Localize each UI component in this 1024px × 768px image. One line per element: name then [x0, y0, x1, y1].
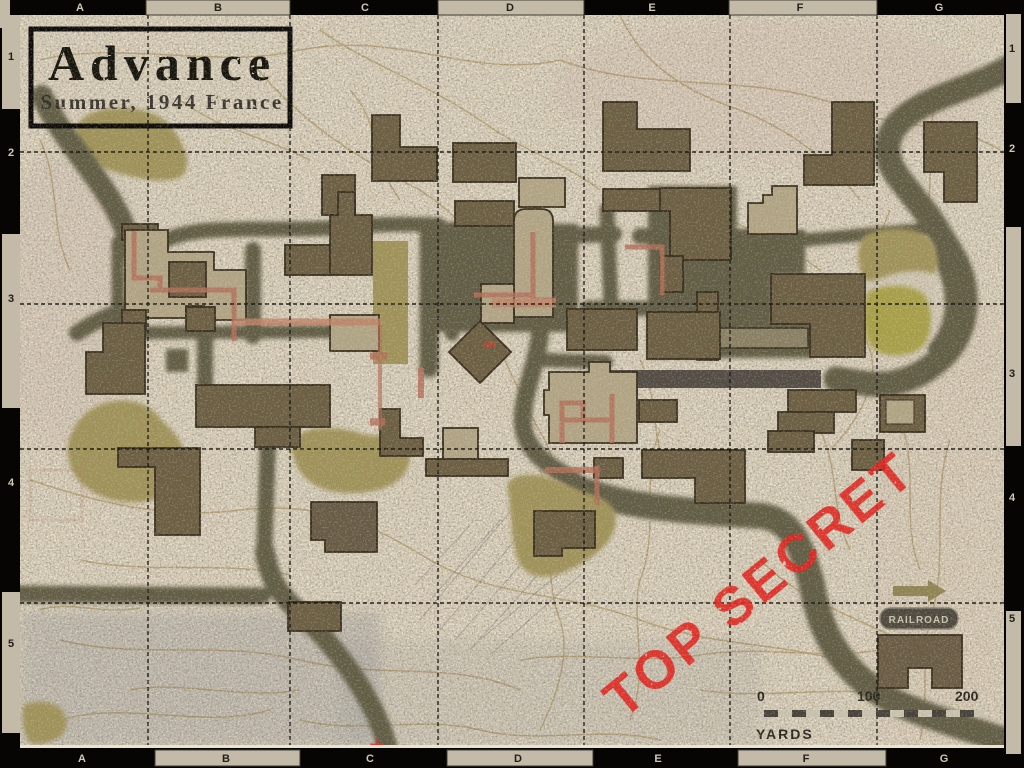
- svg-text:E: E: [648, 2, 655, 14]
- svg-text:A: A: [76, 2, 84, 14]
- svg-text:F: F: [803, 753, 810, 765]
- svg-text:4: 4: [8, 477, 15, 489]
- svg-text:1: 1: [8, 51, 14, 63]
- svg-text:2: 2: [8, 147, 14, 159]
- svg-text:2: 2: [1009, 143, 1015, 155]
- svg-text:5: 5: [8, 638, 14, 650]
- svg-text:3: 3: [1009, 368, 1015, 380]
- svg-text:D: D: [514, 753, 522, 765]
- svg-text:3: 3: [8, 293, 14, 305]
- svg-text:4: 4: [1009, 492, 1016, 504]
- svg-text:1: 1: [1009, 43, 1015, 55]
- svg-text:C: C: [366, 753, 374, 765]
- svg-text:5: 5: [1009, 613, 1015, 625]
- svg-text:B: B: [222, 753, 230, 765]
- svg-text:G: G: [940, 753, 949, 765]
- svg-text:E: E: [654, 753, 661, 765]
- svg-text:C: C: [361, 2, 369, 14]
- svg-text:A: A: [78, 753, 86, 765]
- svg-text:F: F: [797, 2, 804, 14]
- svg-text:B: B: [214, 2, 222, 14]
- svg-text:D: D: [506, 2, 514, 14]
- svg-text:G: G: [935, 2, 944, 14]
